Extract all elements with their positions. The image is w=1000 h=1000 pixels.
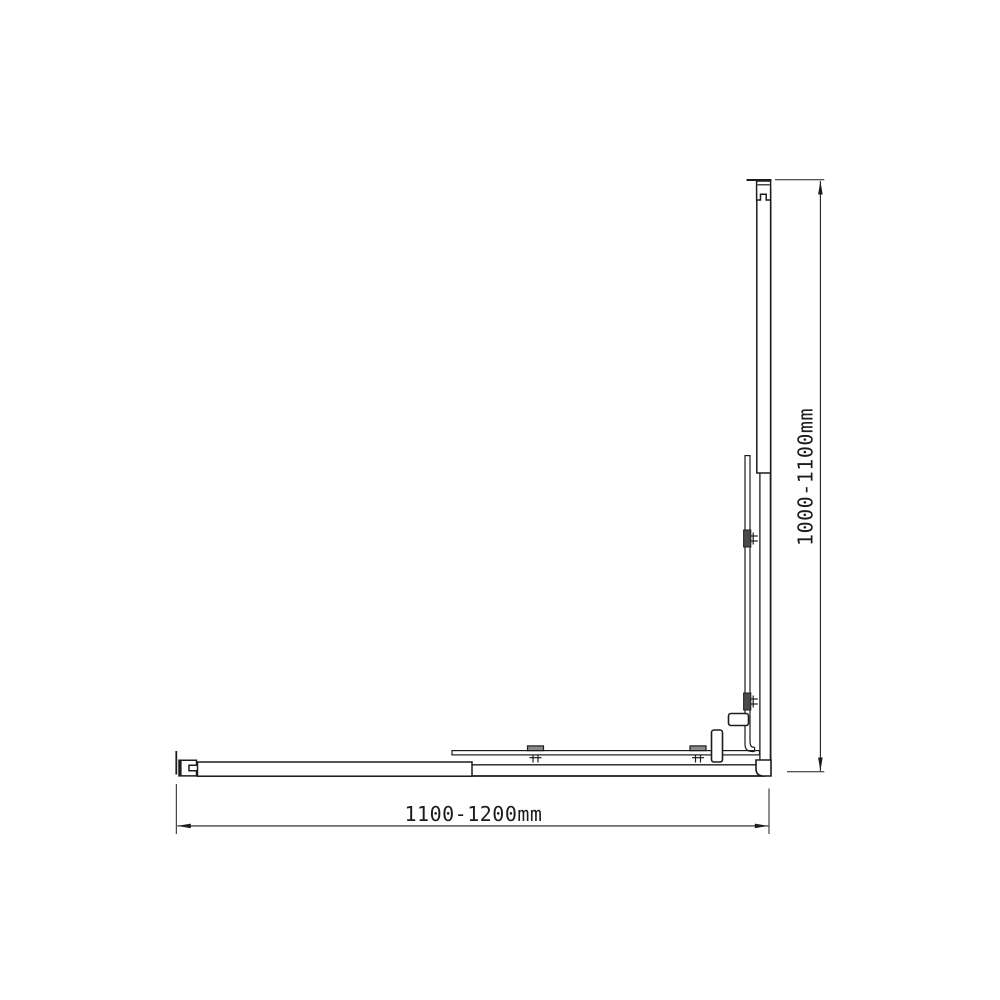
roller-clamp-side-2 <box>744 693 758 710</box>
door-knob-bottom <box>712 730 723 762</box>
arrow-right-icon <box>755 824 769 829</box>
shower-screen-plan-drawing: 1000-1100mm 1100-1200mm <box>0 0 1000 1000</box>
width-dimension-label: 1100-1200mm <box>405 802 543 826</box>
width-dimension: 1100-1200mm <box>176 784 769 834</box>
arrow-up-icon <box>818 181 823 195</box>
arrow-left-icon <box>177 824 191 829</box>
roller-cap <box>528 746 544 751</box>
fixed-panel-bottom <box>198 762 473 776</box>
door-knob-side <box>729 714 749 726</box>
height-dimension-label: 1000-1100mm <box>794 408 818 546</box>
technical-drawing-canvas: 1000-1100mm 1100-1200mm <box>0 0 1000 1000</box>
corner-post <box>756 760 771 776</box>
side-door-assembly <box>729 180 772 765</box>
clamp-block <box>744 693 751 710</box>
fixed-panel-side <box>757 190 771 473</box>
clamp-block <box>744 530 751 547</box>
height-dimension: 1000-1100mm <box>775 180 824 772</box>
roller-clamp-side-1 <box>744 530 758 547</box>
arrow-down-icon <box>818 758 823 772</box>
wall-bracket-left <box>179 760 197 776</box>
roller-cap <box>690 746 706 751</box>
bottom-door-assembly <box>176 730 765 776</box>
